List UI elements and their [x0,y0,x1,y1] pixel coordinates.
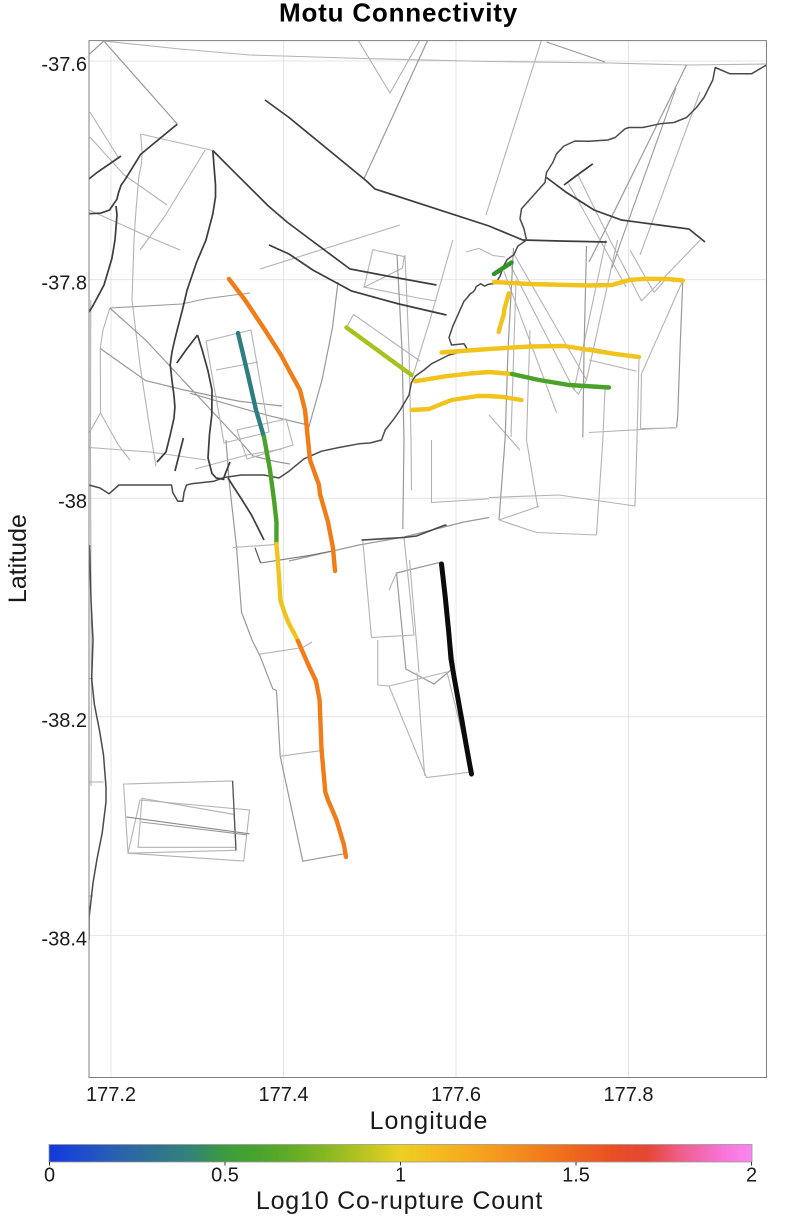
svg-text:-37.8: -37.8 [41,273,87,295]
svg-text:Longitude: Longitude [370,1107,489,1135]
svg-text:0.5: 0.5 [211,1165,239,1187]
svg-text:-38.4: -38.4 [41,928,87,950]
svg-text:-38.2: -38.2 [41,710,87,732]
svg-text:Latitude: Latitude [4,514,32,603]
svg-text:Motu Connectivity: Motu Connectivity [279,0,518,28]
svg-text:-37.6: -37.6 [41,54,87,76]
svg-text:177.2: 177.2 [86,1084,136,1106]
svg-text:Log10 Co-rupture Count: Log10 Co-rupture Count [256,1187,543,1215]
svg-text:177.6: 177.6 [431,1084,481,1106]
svg-text:177.4: 177.4 [258,1084,308,1106]
svg-text:0: 0 [44,1165,55,1187]
svg-text:-38: -38 [58,491,87,513]
svg-text:2: 2 [746,1165,757,1187]
svg-text:1: 1 [395,1165,406,1187]
svg-text:1.5: 1.5 [562,1165,590,1187]
svg-text:177.8: 177.8 [603,1084,653,1106]
